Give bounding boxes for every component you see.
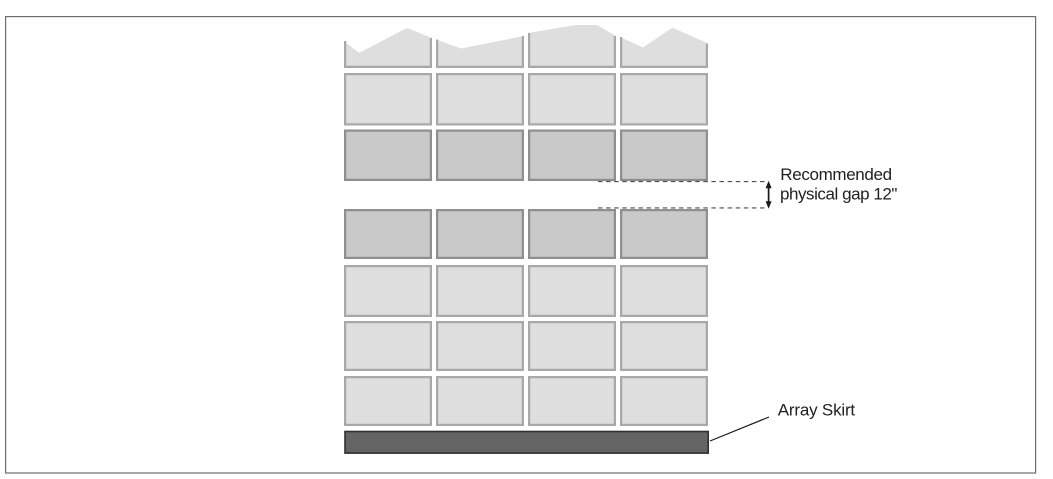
- svg-text:Array Skirt: Array Skirt: [778, 400, 856, 419]
- svg-text:Recommended: Recommended: [780, 165, 891, 184]
- svg-text:physical gap 12": physical gap 12": [780, 185, 897, 204]
